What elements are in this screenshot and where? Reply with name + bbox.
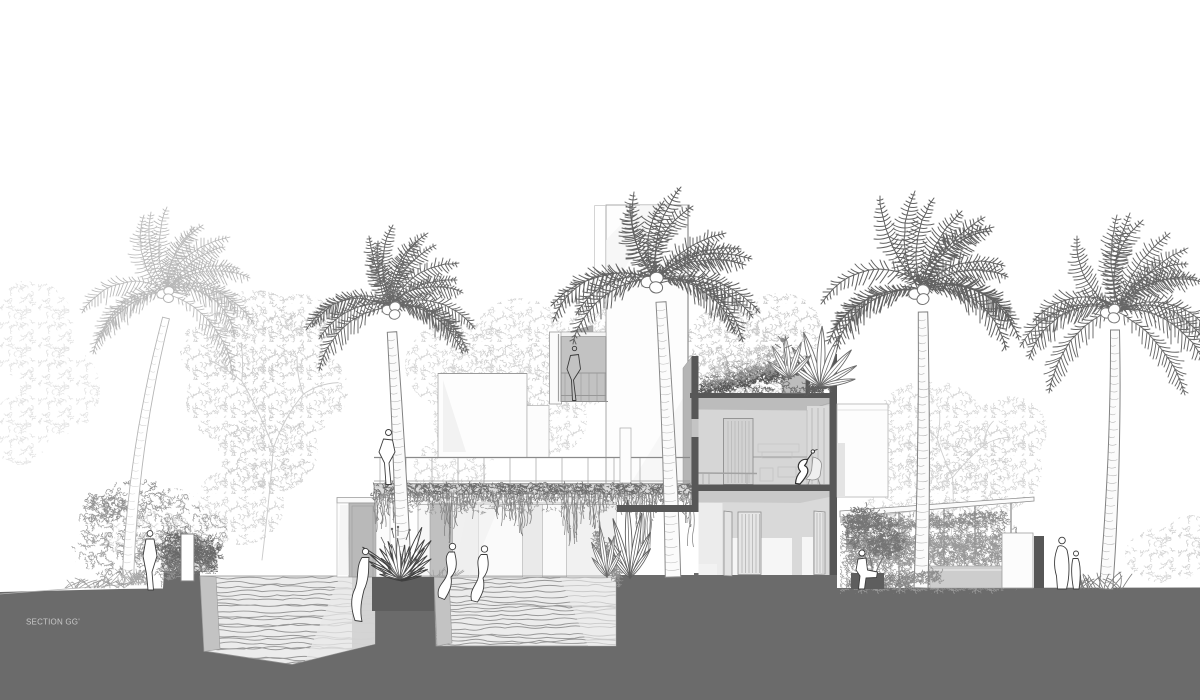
svg-text:SECTION GG': SECTION GG' bbox=[26, 618, 80, 627]
